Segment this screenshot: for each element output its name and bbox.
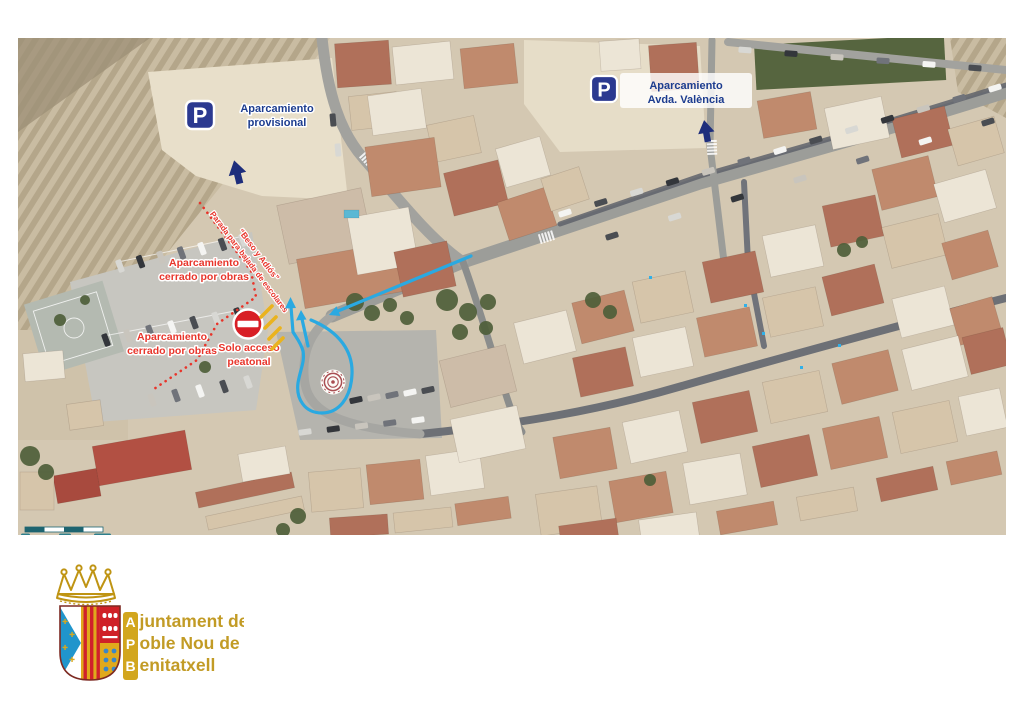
parking-provisional-line1: Aparcamiento xyxy=(240,103,314,115)
closed-upper-line2: cerrado por obras xyxy=(159,271,249,283)
parking-p-letter-2: P xyxy=(597,80,610,102)
flyer-page: “Beso y Adiós” Parada para bajada de esc… xyxy=(0,0,1024,724)
aerial-map: “Beso y Adiós” Parada para bajada de esc… xyxy=(18,38,1006,535)
crown-icon xyxy=(57,565,115,604)
shield-icon: ✚✚ ✚✚ xyxy=(60,606,120,680)
logo-line1: juntament del xyxy=(139,611,245,631)
roundabout-icon xyxy=(321,370,346,395)
pedestrian-line1: Solo acceso xyxy=(218,342,279,354)
parking-provisional-line2: provisional xyxy=(248,117,307,129)
svg-text:✚: ✚ xyxy=(62,644,68,652)
logo-line2: oble Nou de xyxy=(140,633,240,653)
parking-icon-provisional: P xyxy=(186,101,215,130)
parking-avda-line1: Aparcamiento xyxy=(649,80,723,92)
parking-p-letter-1: P xyxy=(193,103,208,128)
ayuntamiento-logo: ✚✚ ✚✚ xyxy=(24,560,244,710)
logo-initial-p: P xyxy=(126,636,135,652)
svg-text:✚: ✚ xyxy=(69,656,75,664)
logo-initial-a: A xyxy=(125,614,135,630)
logo-line3: enitatxell xyxy=(140,655,216,675)
svg-text:✚: ✚ xyxy=(69,631,75,639)
parking-avda-line2: Avda. València xyxy=(648,94,726,106)
closed-lower-line1: Aparcamiento xyxy=(137,331,207,343)
svg-text:✚: ✚ xyxy=(62,618,68,626)
closed-lower-line2: cerrado por obras xyxy=(127,345,217,357)
logo-initial-b: B xyxy=(125,658,135,674)
pedestrian-line2: peatonal xyxy=(227,356,270,368)
no-entry-icon xyxy=(233,309,264,340)
closed-upper-line1: Aparcamiento xyxy=(169,257,239,269)
